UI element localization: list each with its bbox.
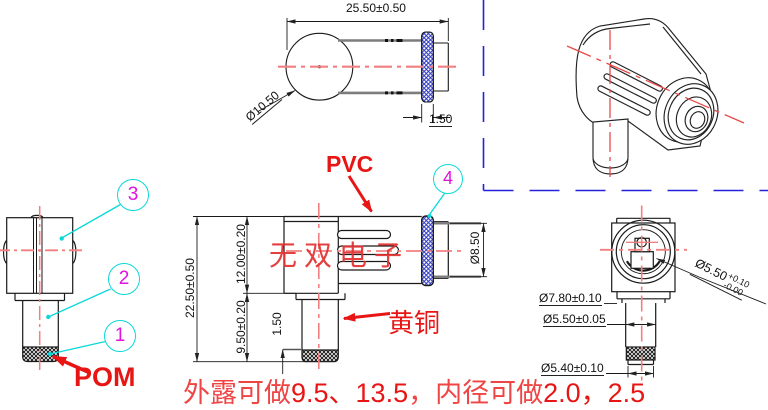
label-pvc: PVC [326, 151, 373, 178]
top-view-lineart [258, 18, 460, 123]
dim-body-height: 12.00±0.20 [234, 224, 248, 284]
dim-flange-diameter: Ø7.80±0.10 [539, 291, 602, 306]
balloon-1: 1 [104, 320, 136, 352]
label-brass: 黄铜 [388, 303, 440, 340]
note-part2: 9.5、13.5 [291, 378, 408, 408]
dim-top-length: 25.50±0.50 [330, 1, 422, 15]
label-pom: POM [74, 362, 136, 393]
dim-overall-height: 22.50±0.50 [183, 258, 197, 318]
balloon-3: 3 [117, 179, 149, 211]
note-part3: ，内径可做 [408, 378, 543, 408]
note-part1: 外露可做 [183, 378, 291, 408]
isometric-view-lineart [567, 19, 744, 177]
dim-stem-height: 9.50±0.20 [234, 300, 248, 353]
dim-knurl-height: 1.50 [270, 312, 284, 335]
balloon-2: 2 [108, 263, 140, 295]
dim-ring-width: 1.50 [429, 112, 452, 127]
note-part4: 2.0，2.5 [543, 378, 645, 408]
note-text: 外露可做9.5、13.5，内径可做2.0，2.5 [183, 371, 645, 410]
dim-barrel-diameter: Ø8.50 [468, 232, 482, 265]
dim-stem-diameter: Ø5.50±0.05 [543, 312, 606, 327]
balloon-4: 4 [433, 164, 463, 194]
watermark: 无双电子 [269, 234, 409, 274]
cad-drawing-page: 25.50±0.50 Ø10.50 1.50 22.50±0.50 12.00±… [0, 0, 768, 410]
front-view-lineart [0, 205, 121, 375]
